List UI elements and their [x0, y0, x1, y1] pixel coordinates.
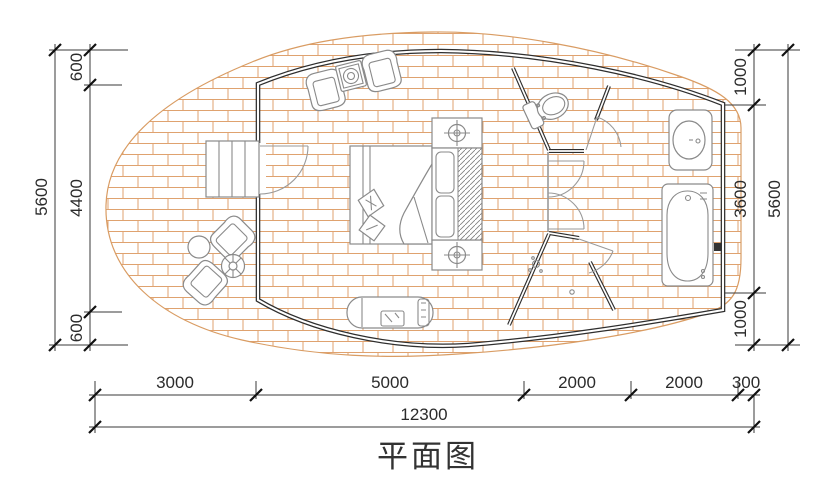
- drawing-title: 平面图: [377, 439, 479, 474]
- stairs: [206, 141, 259, 197]
- wardrobe-hatch: [458, 148, 482, 240]
- bench-daybed: [347, 297, 433, 328]
- dimensions-bottom: 3000 5000 2000 2000 300 12300: [89, 373, 760, 433]
- floor-plan-drawing: 5600 600 4400 600 1000 3600 1000 5600 30…: [0, 0, 837, 496]
- dim-bottom-3000: 3000: [156, 373, 194, 392]
- dim-right-total: 5600: [765, 180, 784, 218]
- bed: [350, 146, 432, 244]
- dim-bottom-2000-b: 2000: [665, 373, 703, 392]
- dim-left-600-top: 600: [67, 53, 86, 81]
- dim-bottom-5000: 5000: [371, 373, 409, 392]
- dim-bottom-2000-a: 2000: [558, 373, 596, 392]
- washbasin: [669, 110, 712, 170]
- dim-right-1000-bottom: 1000: [731, 300, 750, 338]
- dim-bottom-300: 300: [732, 373, 760, 392]
- dim-right-3600: 3600: [731, 180, 750, 218]
- dim-left-4400: 4400: [67, 179, 86, 217]
- dim-left-600-bottom: 600: [67, 314, 86, 342]
- dim-right-1000-top: 1000: [731, 58, 750, 96]
- parasol-table: [222, 255, 245, 278]
- floor-plan-page: 5600 600 4400 600 1000 3600 1000 5600 30…: [0, 0, 837, 496]
- dim-left-total: 5600: [32, 178, 51, 216]
- headboard-unit: [432, 118, 482, 270]
- bathtub: [662, 184, 722, 286]
- wall-valve: [714, 243, 722, 251]
- round-table: [188, 236, 210, 258]
- dim-bottom-total: 12300: [400, 405, 447, 424]
- dimensions-right: 1000 3600 1000 5600: [724, 44, 800, 351]
